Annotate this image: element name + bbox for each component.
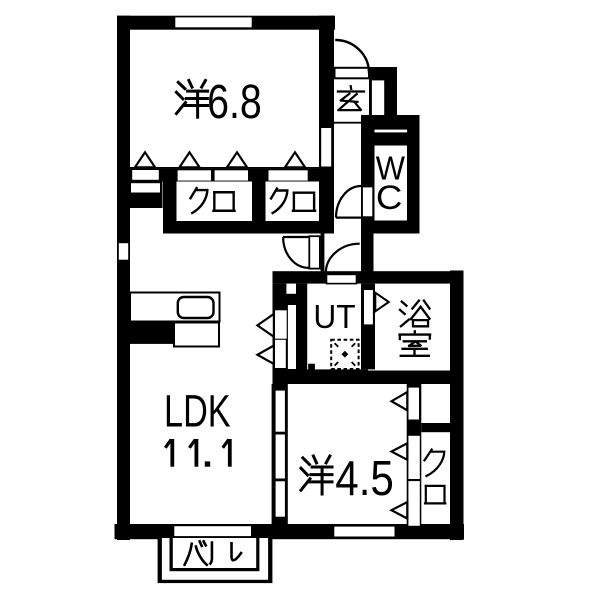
svg-text:LDK: LDK xyxy=(164,387,231,437)
svg-text:6.8: 6.8 xyxy=(207,75,262,129)
svg-text:C: C xyxy=(376,179,403,216)
svg-text:4.5: 4.5 xyxy=(335,451,394,506)
svg-text:UT: UT xyxy=(313,298,355,335)
